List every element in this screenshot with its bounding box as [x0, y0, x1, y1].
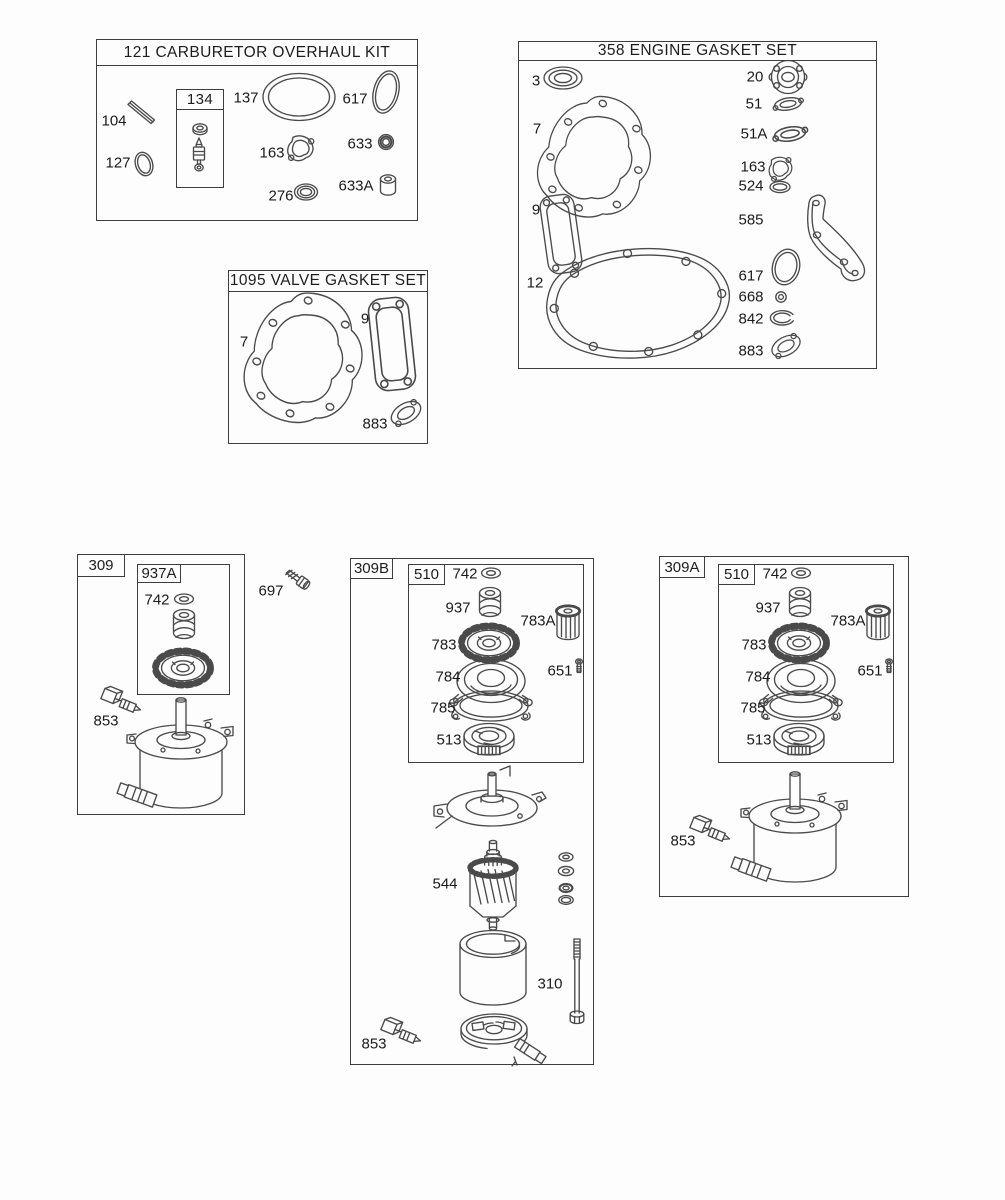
part-label-513-309a: 513: [746, 732, 771, 749]
part-label-651-309a: 651: [857, 663, 882, 680]
starter-309-subbox: [137, 564, 230, 695]
part-label-784-309b: 784: [435, 669, 460, 686]
starter-309a-tag: 309A: [659, 556, 705, 578]
part-label-51: 51: [746, 96, 763, 113]
part-label-853-309: 853: [93, 713, 118, 730]
part-label-7v: 7: [240, 334, 248, 351]
part-label-51A: 51A: [741, 126, 768, 143]
part-label-783A-309b: 783A: [520, 613, 555, 630]
part-label-163: 163: [259, 145, 284, 162]
part-label-783A-309a: 783A: [830, 613, 865, 630]
part-label-9: 9: [532, 202, 540, 219]
starter-309-tag: 309: [77, 554, 125, 577]
part-label-853-309b: 853: [361, 1036, 386, 1053]
part-label-668: 668: [738, 289, 763, 306]
starter-309b-tag: 309B: [350, 558, 393, 579]
part-label-633: 633: [347, 136, 372, 153]
part-label-651-309b: 651: [547, 663, 572, 680]
part-label-544: 544: [432, 876, 457, 893]
part-label-104: 104: [101, 113, 126, 130]
part-label-20: 20: [747, 69, 764, 86]
part-label-7: 7: [533, 121, 541, 138]
part-label-742-309a: 742: [762, 566, 787, 583]
part-label-137: 137: [233, 90, 258, 107]
engine-gasket-title: 358 ENGINE GASKET SET: [519, 42, 876, 61]
part-label-785-309a: 785: [740, 700, 765, 717]
part-label-127: 127: [105, 155, 130, 172]
starter-309-subtag: 937A: [137, 564, 181, 583]
part-label-883v: 883: [362, 416, 387, 433]
part-label-617b: 617: [738, 268, 763, 285]
starter-309a-subtag: 510: [718, 564, 755, 585]
part-label-742-309: 742: [144, 592, 169, 609]
part-label-513-309b: 513: [436, 732, 461, 749]
needle-kit-label: 134: [177, 90, 223, 110]
part-label-853-309a: 853: [670, 833, 695, 850]
valve-gasket-box: 1095 VALVE GASKET SET: [228, 270, 428, 444]
part-label-12: 12: [527, 275, 544, 292]
part-label-883: 883: [738, 343, 763, 360]
part-label-742-309b: 742: [452, 566, 477, 583]
needle-kit-box: 134: [176, 89, 224, 188]
carb-kit-title: 121 CARBURETOR OVERHAUL KIT: [97, 40, 417, 66]
part-label-3: 3: [532, 73, 540, 90]
part-label-617: 617: [342, 91, 367, 108]
part-label-937-309a: 937: [755, 600, 780, 617]
part-label-276: 276: [268, 188, 293, 205]
valve-gasket-title: 1095 VALVE GASKET SET: [229, 271, 427, 292]
part-label-585: 585: [738, 212, 763, 229]
part-label-9v: 9: [361, 311, 369, 328]
part-label-163b: 163: [740, 159, 765, 176]
part-label-784-309a: 784: [745, 669, 770, 686]
part-label-937-309b: 937: [445, 600, 470, 617]
part-label-310: 310: [537, 976, 562, 993]
part-label-783-309b: 783: [431, 637, 456, 654]
starter-309b-subtag: 510: [408, 564, 445, 585]
part-label-524: 524: [738, 178, 763, 195]
mount-screw-graphic: [284, 567, 311, 590]
part-label-785-309b: 785: [430, 700, 455, 717]
engine-gasket-box: 358 ENGINE GASKET SET: [518, 41, 877, 369]
part-label-633A: 633A: [338, 178, 373, 195]
parts-diagram-page: 121 CARBURETOR OVERHAUL KIT 134 358 ENGI…: [0, 0, 1005, 1200]
part-label-783-309a: 783: [741, 637, 766, 654]
part-label-697: 697: [258, 583, 283, 600]
part-label-842: 842: [738, 311, 763, 328]
